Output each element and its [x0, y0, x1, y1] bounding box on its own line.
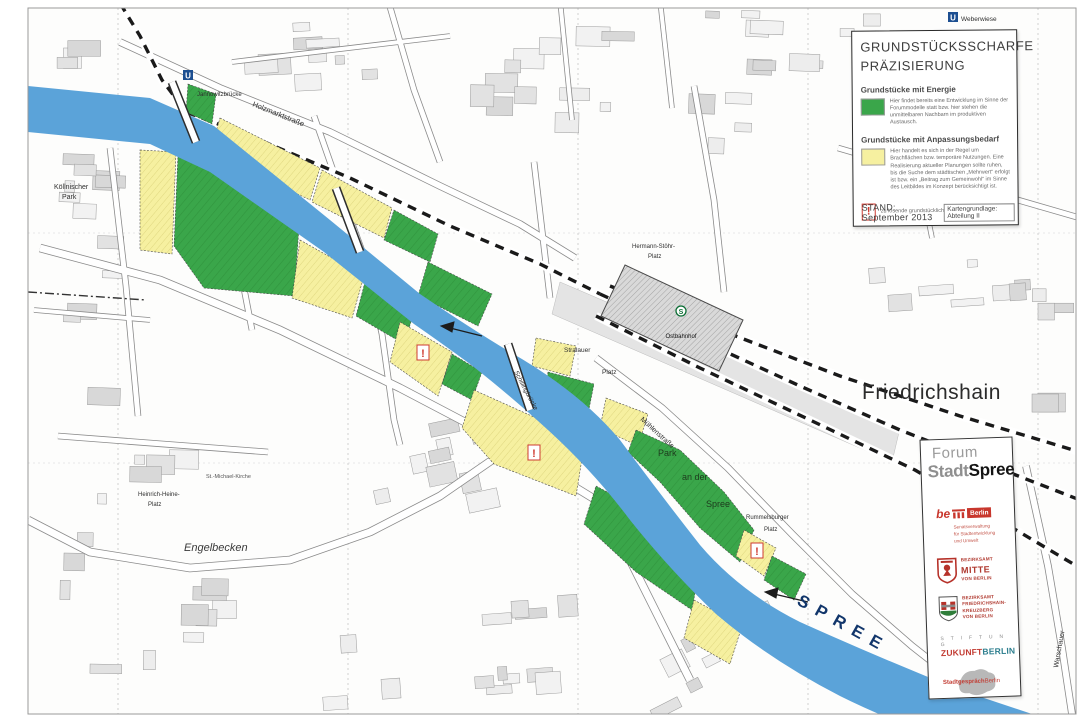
label-ostbahnhof: Ostbahnhof — [665, 334, 696, 340]
label-engelbecken: Engelbecken — [184, 542, 248, 554]
be-berlin-be: be — [936, 507, 950, 521]
label-rummelsburger: Rummelsburger — [746, 515, 789, 521]
be-berlin-wordmark: Berlin — [967, 507, 992, 518]
parcel-anpassung-yellow — [140, 150, 176, 254]
brandenburg-gate-icon — [952, 508, 965, 518]
legend-stand-date: STAND: September 2013 — [862, 202, 944, 223]
mitte-line2: MITTE — [961, 563, 994, 576]
legend-section-energy-heading: Grundstücke mit Energie — [861, 84, 1010, 94]
senat-line3: und Umwelt — [954, 536, 1011, 545]
label-koellnischer-park: Park — [62, 194, 77, 201]
legend-section-adaptation-text: Hier handelt es sich in der Regel um Bra… — [890, 148, 1010, 192]
alert-marker: ! — [417, 345, 429, 360]
bezirksamt-fk-logo: BEZIRKSAMT FRIEDRICHSHAIN- KREUZBERG VON… — [938, 593, 1014, 622]
forum-spree: Spree — [968, 459, 1014, 480]
legend-title-line2: PRÄZISIERUNG — [860, 56, 1009, 76]
label-hermann-stoehr-platz: Platz — [648, 254, 661, 260]
alert-exclamation: ! — [532, 448, 536, 460]
label-stralauer: Stralauer — [564, 347, 591, 354]
label-koellnischer: Köllnischer — [54, 184, 89, 191]
sbahn-symbol-ostbahnhof: S — [676, 306, 686, 316]
u-icon: U — [950, 14, 956, 23]
be-berlin-logo: be Berlin — [936, 505, 1010, 522]
mitte-crest-icon — [937, 557, 958, 584]
alert-exclamation: ! — [421, 348, 425, 360]
forum-subtitle: StadtSpree — [927, 460, 1009, 483]
stadtgespraech-berlin-logo: StadtgesprächBerlin — [942, 665, 1013, 701]
label-an-der: an der — [682, 472, 708, 482]
mitte-line3: VON BERLIN — [961, 575, 993, 582]
fk-line4: VON BERLIN — [963, 613, 1007, 621]
senatsverwaltung-caption: Senatsverwaltung für Stadtentwicklung un… — [953, 523, 1011, 546]
bezirksamt-mitte-logo: BEZIRKSAMT MITTE VON BERLIN — [937, 555, 1013, 584]
berlin-word: BERLIN — [982, 645, 1015, 656]
alert-marker: ! — [528, 445, 540, 460]
u-icon: U — [185, 72, 191, 81]
label-stralauer-platz: Platz — [602, 369, 616, 376]
friedrichshain-kreuzberg-crest-icon — [938, 595, 959, 622]
s-icon: S — [679, 309, 684, 316]
label-friedrichshain: Friedrichshain — [862, 381, 1001, 404]
legend-box: GRUNDSTÜCKSSCHARFE PRÄZISIERUNG Grundstü… — [851, 29, 1019, 226]
label-spree-park: Spree — [706, 499, 730, 509]
legend-title-line1: GRUNDSTÜCKSSCHARFE — [860, 37, 1009, 57]
stadtgespraech-berlin-word: Berlin — [985, 678, 1001, 685]
alert-marker: ! — [751, 543, 763, 558]
legend-map-source: Kartengrundlage: Abteilung II — [943, 203, 1015, 222]
label-jannowitzbruecke: Jannowitzbrücke — [197, 92, 242, 98]
legend-swatch-yellow — [861, 149, 885, 166]
forum-stadtspree-box: Forum StadtSpree be Berlin Senatsverwalt… — [919, 436, 1021, 699]
label-st-michael: St.-Michael-Kirche — [206, 474, 251, 480]
forum-stadt: Stadt — [927, 461, 969, 481]
ubahn-symbol-weberwiese: U — [948, 12, 958, 23]
scanned-planning-map: ! ! ! U U S Friedrichshain SPREE Park an… — [0, 0, 1080, 720]
legend-section-energy-text: Hier findet bereits eine Entwicklung im … — [890, 97, 1010, 127]
zukunft-word: ZUKUNFT — [941, 646, 983, 657]
legend-section-adaptation-heading: Grundstücke mit Anpassungsbedarf — [861, 135, 1010, 145]
label-hermann-stoehr: Hermann-Stöhr- — [632, 244, 675, 250]
label-rummelsburger-platz: Platz — [764, 527, 777, 533]
alert-exclamation: ! — [755, 546, 759, 558]
label-heinrich-heine-platz: Platz — [148, 502, 161, 508]
stiftung-zukunft-berlin-logo: S T I F T U N G ZUKUNFTBERLIN — [940, 633, 1015, 658]
label-weberwiese: Weberwiese — [961, 16, 997, 23]
label-park: Park — [658, 448, 677, 458]
label-heinrich-heine: Heinrich-Heine- — [138, 492, 180, 498]
legend-swatch-green — [861, 98, 885, 115]
ubahn-symbol-jannowitzbruecke: U — [183, 70, 193, 81]
